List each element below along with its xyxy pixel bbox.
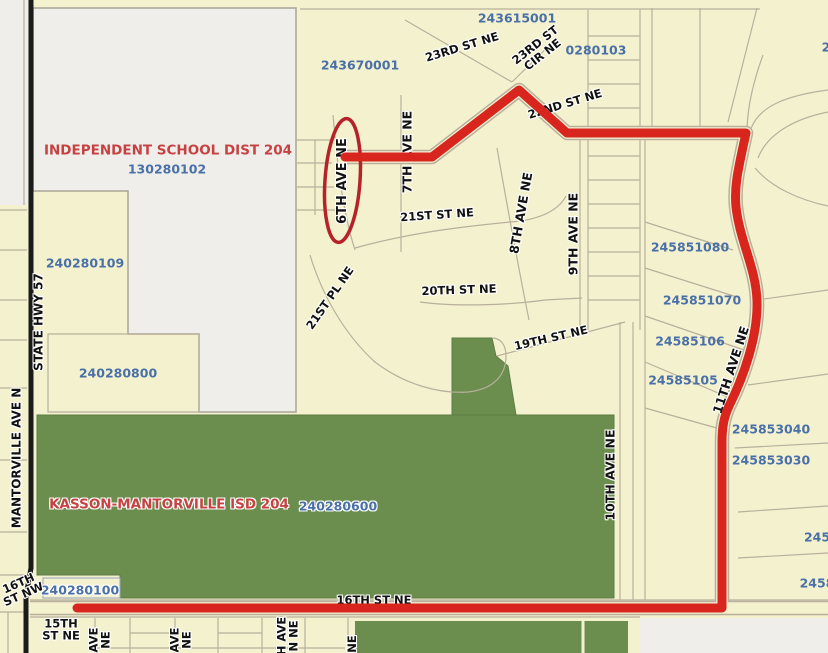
street-label-21st-st-ne: 21ST ST NE	[400, 206, 474, 224]
street-label-6th-ave-ne: 6TH AVE NE	[336, 138, 350, 224]
parcel-label-240280600: 240280600	[299, 499, 377, 513]
street-label-state-hwy-57: STATE HWY 57	[33, 273, 46, 371]
parcel-label-243615001: 243615001	[478, 11, 556, 25]
street-label-23rd-st-cir-ne: 23RD ST CIR NE	[510, 23, 568, 76]
street-label-15th-st-ne: 15TH ST NE	[42, 618, 80, 643]
parcel-label-partial-2: 2	[822, 40, 828, 54]
street-label-9th-ave-ne: 9TH AVE NE	[566, 193, 580, 275]
parcel-label-24585106: 24585106	[655, 334, 725, 348]
street-label-partial-h-ave-n-ne: H AVE N NE	[276, 617, 301, 653]
parcel-label-245853040: 245853040	[732, 422, 810, 436]
street-label-22nd-st-ne: 22ND ST NE	[526, 87, 603, 121]
district-label-kasson-mantorville: KASSON-MANTORVILLE ISD 204	[49, 498, 289, 513]
street-label-7th-ave-ne: 7TH AVE NE	[400, 111, 414, 193]
street-label-mantorville-ave-n: MANTORVILLE AVE N	[11, 388, 24, 529]
parcel-map[interactable]: 2436150012436700010280103130280102240280…	[0, 0, 828, 653]
street-label-8th-ave-ne: 8TH AVE NE	[507, 171, 535, 255]
district-label-isd-204: INDEPENDENT SCHOOL DIST 204	[44, 144, 292, 159]
parcel-label-partial-2458: 2458	[800, 576, 828, 590]
parcel-label-245851080: 245851080	[651, 240, 729, 254]
parcel-label-240280800: 240280800	[79, 366, 157, 380]
map-labels-layer: 2436150012436700010280103130280102240280…	[0, 0, 828, 653]
parcel-label-240280109: 240280109	[46, 256, 124, 270]
parcel-label-245851070: 245851070	[663, 293, 741, 307]
parcel-label-240280100: 240280100	[41, 583, 119, 597]
street-label-21st-pl-ne: 21ST PL NE	[304, 264, 356, 331]
street-label-partial-ave-ne-1: AVE NE	[88, 628, 113, 653]
street-label-partial-ave-ne-2: AVE NE	[169, 628, 194, 653]
street-label-10th-ave-ne: 10TH AVE NE	[603, 429, 617, 520]
street-label-16th-st-ne: 16TH ST NE	[336, 594, 411, 606]
parcel-label-245853030: 245853030	[732, 453, 810, 467]
street-label-partial-ne: NE	[346, 635, 358, 652]
parcel-label-243670001: 243670001	[321, 58, 399, 72]
parcel-label-partial-245: 245	[804, 530, 828, 544]
parcel-label-130280102: 130280102	[128, 162, 206, 176]
street-label-23rd-st-ne: 23RD ST NE	[424, 30, 500, 64]
street-label-20th-st-ne: 20TH ST NE	[421, 282, 496, 297]
street-label-19th-st-ne: 19TH ST NE	[513, 324, 589, 353]
parcel-label-0280103: 0280103	[566, 43, 627, 57]
street-label-16th-st-nw: 16TH ST NW	[0, 569, 45, 609]
parcel-label-24585105: 24585105	[648, 373, 718, 387]
